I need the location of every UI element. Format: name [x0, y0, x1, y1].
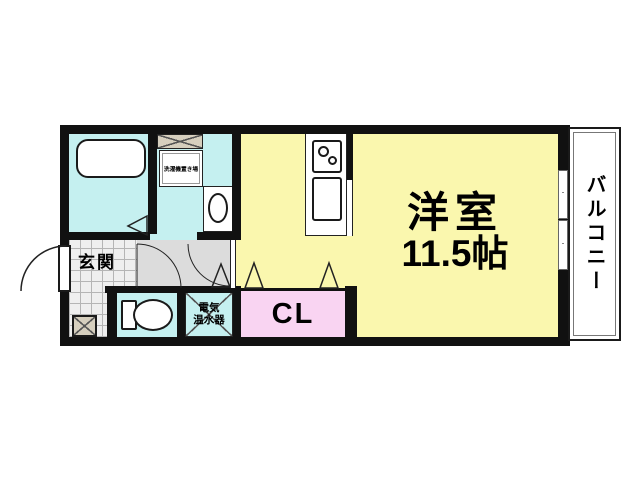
water-heater-label-line1: 電気 [199, 303, 220, 315]
hall-door-arc-left [137, 244, 181, 288]
entrance-label: 玄関 [78, 248, 116, 273]
main-room-size: 11.5帖 [402, 235, 509, 274]
floorplan: 洗濯機置き場 バルコニー 洋室 1 [0, 0, 640, 480]
closet-folding-door-icon-left [245, 263, 263, 288]
closet-label: CL [272, 298, 315, 331]
water-heater-label: 電気 温水器 [185, 292, 233, 337]
entrance-door-arc [21, 246, 66, 291]
closet-folding-door-icon-right [320, 263, 338, 288]
bathroom-folding-door-icon [128, 216, 147, 235]
water-heater-label-line2: 温水器 [193, 315, 225, 327]
main-room-label: 洋室 11.5帖 [360, 175, 550, 290]
closet-label-wrap: CL [241, 291, 345, 337]
hall-door-arc-right [188, 244, 230, 286]
main-room-name: 洋室 [407, 191, 503, 235]
